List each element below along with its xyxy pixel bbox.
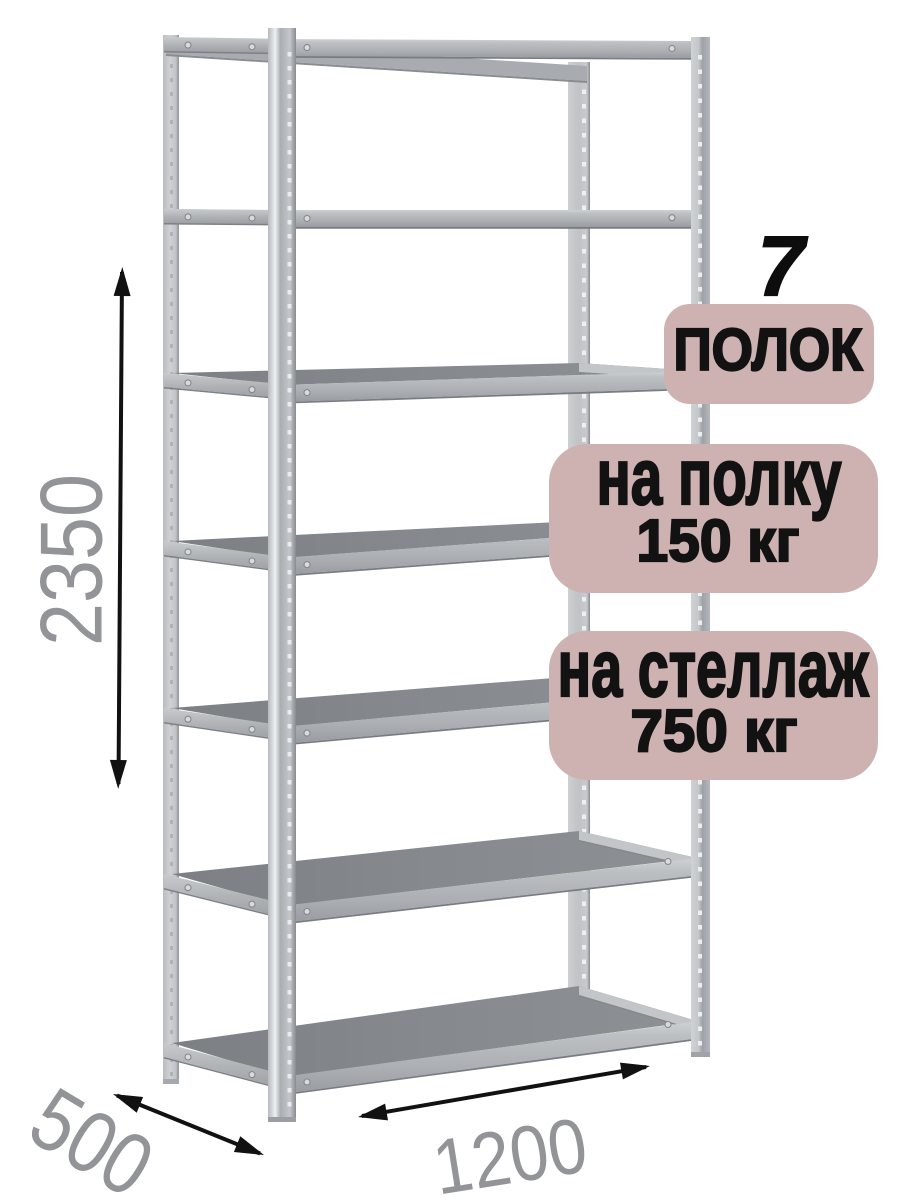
svg-text:2350: 2350: [22, 474, 121, 646]
svg-text:750 кг: 750 кг: [631, 698, 798, 764]
svg-text:150 кг: 150 кг: [637, 508, 800, 574]
svg-text:ПОЛОК: ПОЛОК: [674, 317, 864, 383]
svg-text:7: 7: [758, 219, 808, 313]
svg-text:1200: 1200: [427, 1100, 593, 1200]
svg-text:500: 500: [14, 1068, 170, 1200]
